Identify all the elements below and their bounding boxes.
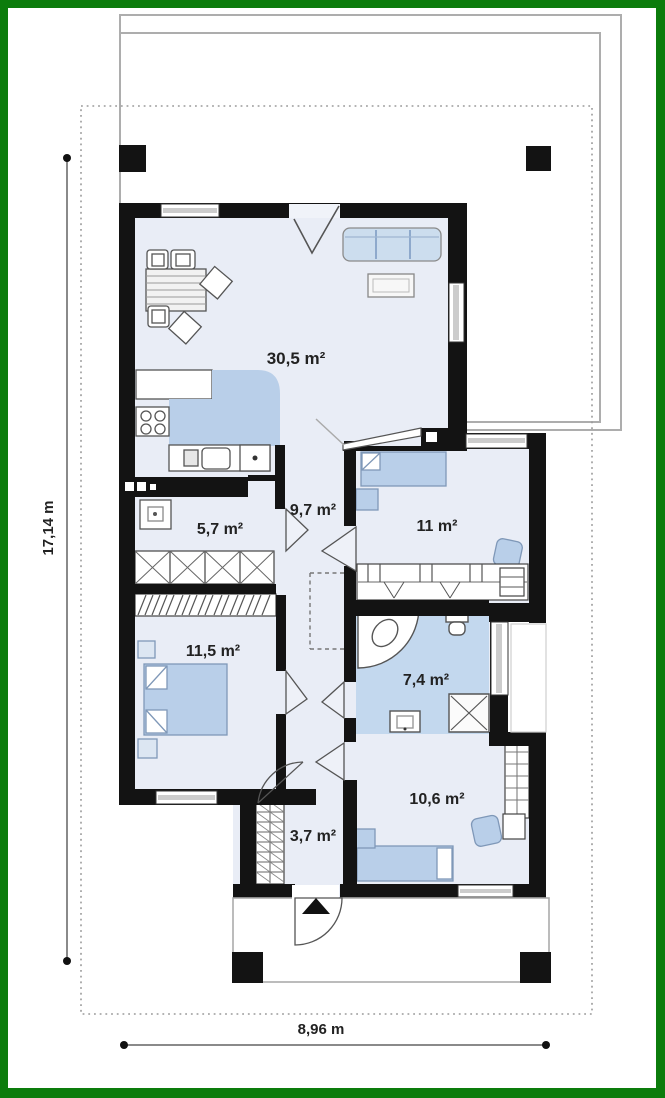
svg-text:30,5 m²: 30,5 m²: [267, 349, 326, 368]
svg-text:8,96 m: 8,96 m: [298, 1021, 345, 1038]
svg-text:7,4 m²: 7,4 m²: [403, 672, 449, 689]
svg-text:10,6 m²: 10,6 m²: [409, 791, 464, 808]
svg-text:9,7 m²: 9,7 m²: [290, 502, 336, 519]
svg-text:17,14 m: 17,14 m: [40, 500, 57, 555]
svg-text:11 m²: 11 m²: [417, 518, 458, 535]
svg-text:3,7 m²: 3,7 m²: [290, 828, 336, 845]
svg-text:11,5 m²: 11,5 m²: [186, 643, 240, 660]
svg-text:5,7 m²: 5,7 m²: [197, 521, 243, 538]
